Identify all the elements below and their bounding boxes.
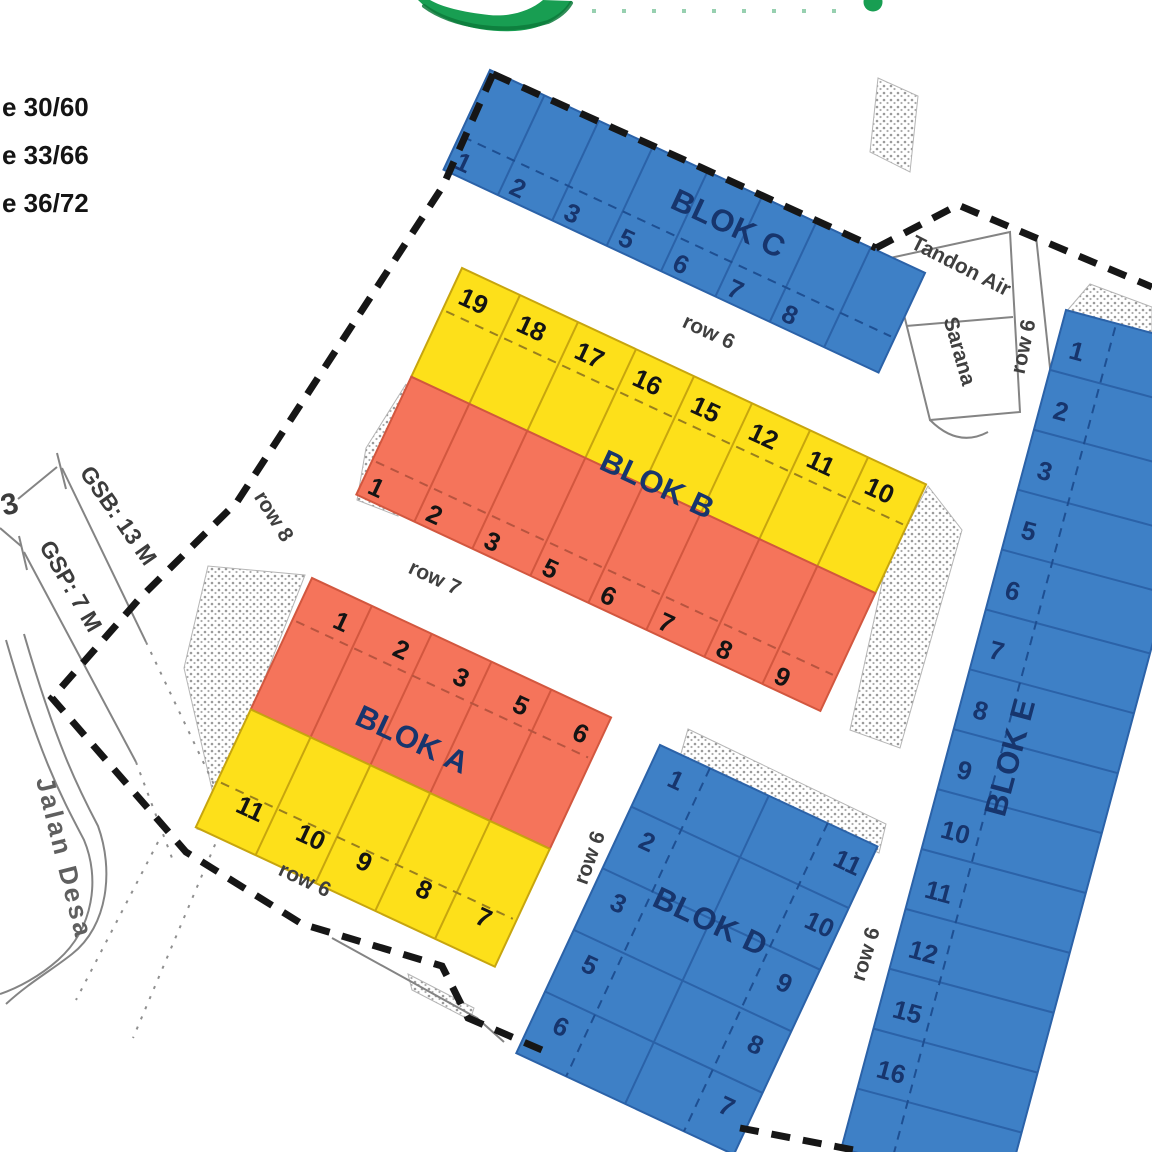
gsb-leader-line	[18, 467, 57, 499]
dotted-line-4	[136, 762, 172, 858]
sarana-label: Sarana	[939, 314, 981, 388]
stipple-blok-c-right	[870, 78, 918, 172]
siteplan-svg: 1235678191817161512111012356789123561110…	[0, 0, 1152, 1152]
legend-type-3: e 36/72	[2, 188, 89, 218]
left-parcel-number: 3	[0, 487, 22, 523]
legend-type-1: e 30/60	[2, 92, 89, 122]
row7-label: row 7	[405, 556, 464, 600]
row8-label: row 8	[249, 487, 298, 546]
logo-fragment	[418, 0, 883, 31]
row6-label-vertical-ne: row 6	[1007, 317, 1041, 375]
gsp-tick	[19, 536, 27, 570]
logo-dot-icon	[864, 0, 883, 12]
gsp-leader-line	[0, 528, 21, 546]
legend-type-2: e 33/66	[2, 140, 89, 170]
siteplan-canvas: 1235678191817161512111012356789123561110…	[0, 0, 1152, 1152]
gsp-label: GSP: 7 M	[34, 536, 107, 636]
row6-label-north: row 6	[679, 310, 738, 354]
row6-label-vertical-de: row 6	[847, 925, 885, 984]
gsb-tick	[57, 453, 66, 489]
gsb-label: GSB: 13 M	[75, 461, 162, 570]
sarana-bottom-curve	[930, 420, 988, 438]
